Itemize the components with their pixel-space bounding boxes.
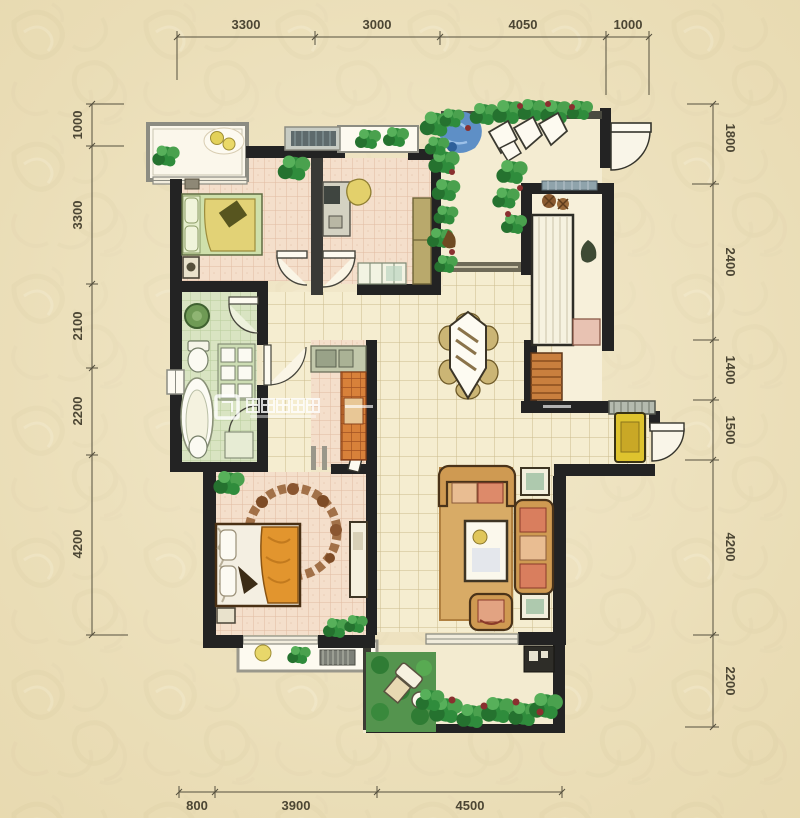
svg-text:2200: 2200 [723,667,738,696]
svg-text:4200: 4200 [723,533,738,562]
svg-text:3900: 3900 [282,798,311,813]
svg-text:800: 800 [186,798,208,813]
svg-text:1500: 1500 [723,416,738,445]
svg-text:1400: 1400 [723,356,738,385]
svg-text:1000: 1000 [70,111,85,140]
svg-text:2200: 2200 [70,397,85,426]
svg-text:1000: 1000 [614,17,643,32]
svg-text:3000: 3000 [363,17,392,32]
svg-text:3300: 3300 [232,17,261,32]
svg-text:2100: 2100 [70,312,85,341]
svg-text:2400: 2400 [723,248,738,277]
svg-text:4050: 4050 [509,17,538,32]
svg-text:1800: 1800 [723,124,738,153]
svg-text:3300: 3300 [70,201,85,230]
svg-text:4200: 4200 [70,530,85,559]
svg-text:4500: 4500 [456,798,485,813]
